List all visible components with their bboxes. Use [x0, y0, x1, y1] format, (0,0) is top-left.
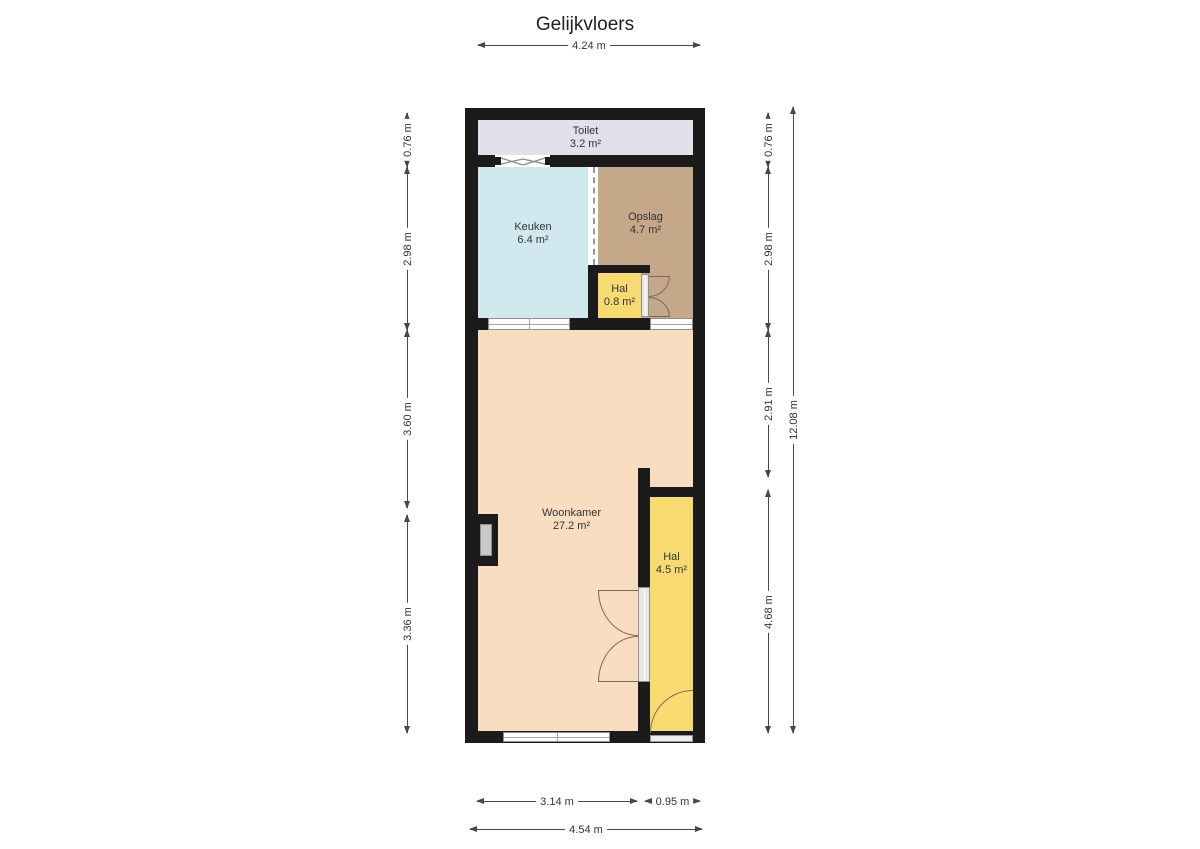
room-label-opslag: Opslag4.7 m² [628, 211, 663, 237]
dim-right-total: 12.08 m [793, 107, 794, 733]
room-keuken: Keuken6.4 m² [478, 167, 588, 318]
wall-mid-center [570, 318, 650, 330]
room-toilet: Toilet3.2 m² [478, 120, 693, 155]
entry-door-threshold [650, 735, 693, 742]
window-keuken-woonkamer [488, 318, 570, 330]
dim-left-4: 3.36 m [407, 515, 408, 733]
dim-bottom-inner-left: 3.14 m [477, 801, 637, 802]
dim-top: 4.24 m [478, 45, 700, 46]
page-title: Gelijkvloers [465, 14, 705, 36]
room-label-hal-small: Hal0.8 m² [604, 283, 635, 309]
window-opslag-woonkamer [650, 318, 693, 330]
dim-bottom-inner-right: 0.95 m [645, 801, 700, 802]
wall-woonkamer-hal-lower [638, 682, 650, 731]
dim-left-3: 3.60 m [407, 330, 408, 508]
dim-bottom-inner-right-label: 0.95 m [652, 796, 694, 808]
wall-exterior-right [693, 108, 705, 743]
wall-hal-top [650, 487, 693, 497]
dim-right-3: 2.91 m [768, 330, 769, 477]
wall-toilet-left [465, 155, 495, 167]
wall-exterior-top [465, 108, 705, 120]
room-hal-small: Hal0.8 m² [598, 273, 641, 318]
dim-right-4-label: 4.68 m [763, 591, 775, 633]
dim-left-2: 2.98 m [407, 167, 408, 330]
room-label-keuken: Keuken6.4 m² [514, 221, 551, 247]
woonkamer-hal-door-frame [638, 587, 650, 682]
wall-woonkamer-hal-upper [638, 468, 650, 587]
dim-right-total-label: 12.08 m [788, 396, 800, 444]
dim-left-4-label: 3.36 m [402, 603, 414, 645]
hal-small-door-frame [641, 274, 649, 317]
room-label-woonkamer: Woonkamer27.2 m² [542, 507, 601, 533]
room-label-hal: Hal4.5 m² [656, 551, 687, 577]
dim-right-2: 2.98 m [768, 167, 769, 330]
dim-left-1: 0.76 m [407, 113, 408, 167]
wall-exterior-left [465, 108, 478, 743]
wall-keuken-opslag-dashed [588, 167, 598, 265]
dim-right-3-label: 2.91 m [763, 383, 775, 425]
dim-top-label: 4.24 m [568, 40, 610, 52]
chimney-niche-inset [480, 524, 492, 556]
dim-left-3-label: 3.60 m [402, 398, 414, 440]
dim-right-1: 0.76 m [768, 113, 769, 167]
dim-right-4: 4.68 m [768, 490, 769, 733]
bifold-door-icon [494, 153, 552, 169]
dim-left-1-label: 0.76 m [402, 119, 414, 161]
dim-left-2-label: 2.98 m [402, 228, 414, 270]
dim-right-1-label: 0.76 m [763, 119, 775, 161]
wall-toilet-right [550, 155, 705, 167]
wall-mid-left [465, 318, 488, 330]
dim-right-2-label: 2.98 m [763, 228, 775, 270]
floorplan-canvas: Gelijkvloers Toilet3.2 m² Keuken6.4 m² O… [0, 0, 1200, 849]
dim-bottom-inner-left-label: 3.14 m [536, 796, 578, 808]
room-label-toilet: Toilet3.2 m² [570, 125, 601, 151]
window-woonkamer-bottom [503, 732, 610, 742]
wall-hal-small-left [588, 265, 598, 318]
dim-bottom-total: 4.54 m [470, 829, 702, 830]
dim-bottom-total-label: 4.54 m [565, 824, 607, 836]
